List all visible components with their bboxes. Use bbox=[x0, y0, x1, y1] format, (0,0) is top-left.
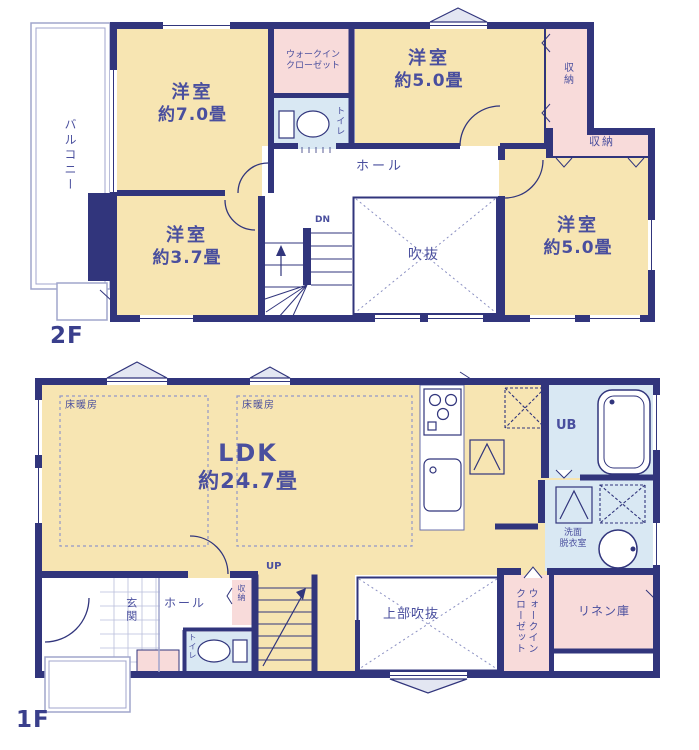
void-2f-label: 吹抜 bbox=[408, 247, 440, 265]
room-south-2f-name: 洋室 bbox=[118, 225, 256, 248]
room-east-2f-size: 約5.0畳 bbox=[505, 238, 651, 259]
stairs-dn-label: DN bbox=[315, 215, 330, 226]
bathtub-icon bbox=[598, 390, 650, 474]
stair-wall-stub-2f bbox=[303, 228, 311, 285]
floor-heating-east-label: 床暖房 bbox=[242, 400, 275, 413]
room-east-2f-name: 洋室 bbox=[505, 215, 651, 238]
unit-bath-label: UB bbox=[556, 418, 576, 434]
floor2-tag: 2F bbox=[50, 322, 84, 351]
washroom-line1: 洗面 bbox=[549, 528, 597, 539]
room-east-2f-label: 洋室 約5.0畳 bbox=[505, 215, 651, 259]
toilet-icon-1f bbox=[198, 640, 247, 662]
room-north-2f-name: 洋室 bbox=[358, 48, 500, 71]
entrance-label: 玄関 bbox=[124, 597, 138, 623]
upper-void-label: 上部吹抜 bbox=[383, 607, 439, 623]
room-south-2f-label: 洋室 約3.7畳 bbox=[118, 225, 256, 269]
room-north-2f-size: 約5.0畳 bbox=[358, 71, 500, 92]
hall-1f-label: ホール bbox=[164, 596, 206, 611]
walkin-closet-2f-line2: クローゼット bbox=[272, 61, 354, 72]
walkin-closet-2f-line1: ウォークイン bbox=[272, 50, 354, 61]
closet-east-2f-label: 収納 bbox=[552, 135, 652, 149]
floor-heating-west-label: 床暖房 bbox=[65, 400, 98, 413]
closet-1f-label: 収納 bbox=[236, 584, 246, 602]
closet-north-2f-label: 収納 bbox=[560, 62, 573, 86]
floor1-tag: 1F bbox=[16, 706, 50, 735]
washbasin-icon bbox=[599, 530, 637, 568]
toilet-2f-label: トイレ bbox=[333, 106, 344, 136]
room-south-2f-size: 約3.7畳 bbox=[118, 248, 256, 269]
ldk-name: LDK bbox=[128, 438, 368, 468]
walkin-closet-1f-line2: クローゼット bbox=[512, 588, 525, 670]
toilet-1f-label: トイレ bbox=[187, 633, 197, 660]
porch-outline-1f bbox=[45, 657, 130, 712]
walkin-closet-1f-line1: ウォークイン bbox=[525, 588, 538, 670]
ldk-label: LDK 約24.7畳 bbox=[128, 438, 368, 494]
kitchen-stove-icon bbox=[424, 389, 461, 435]
walkin-closet-2f-label: ウォークイン クローゼット bbox=[272, 50, 354, 73]
washroom-label: 洗面 脱衣室 bbox=[549, 528, 597, 551]
toilet-icon-2f bbox=[279, 111, 329, 138]
floor-plan: バルコニー 洋室 約7.0畳 ウォークイン クローゼット トイレ 洋室 約5.0… bbox=[0, 0, 699, 750]
floor-plan-drawing bbox=[0, 0, 699, 750]
stairs-up-label: UP bbox=[266, 561, 281, 574]
linen-label: リネン庫 bbox=[558, 604, 650, 619]
kitchen-sink-icon bbox=[424, 459, 461, 511]
bay-window-icon bbox=[430, 8, 487, 22]
room-west-2f-size: 約7.0畳 bbox=[115, 105, 270, 126]
room-west-2f-name: 洋室 bbox=[115, 82, 270, 105]
washroom-line2: 脱衣室 bbox=[549, 539, 597, 550]
ldk-size: 約24.7畳 bbox=[128, 468, 368, 494]
hall-2f-label: ホール bbox=[356, 159, 404, 175]
porch-roof-outline-2f bbox=[57, 283, 107, 320]
balcony-label: バルコニー bbox=[62, 118, 77, 193]
room-north-2f-label: 洋室 約5.0畳 bbox=[358, 48, 500, 92]
room-west-2f-label: 洋室 約7.0畳 bbox=[115, 82, 270, 126]
shoe-cabinet bbox=[137, 650, 179, 673]
walkin-closet-1f-label: ウォークイン クローゼット bbox=[512, 588, 537, 670]
